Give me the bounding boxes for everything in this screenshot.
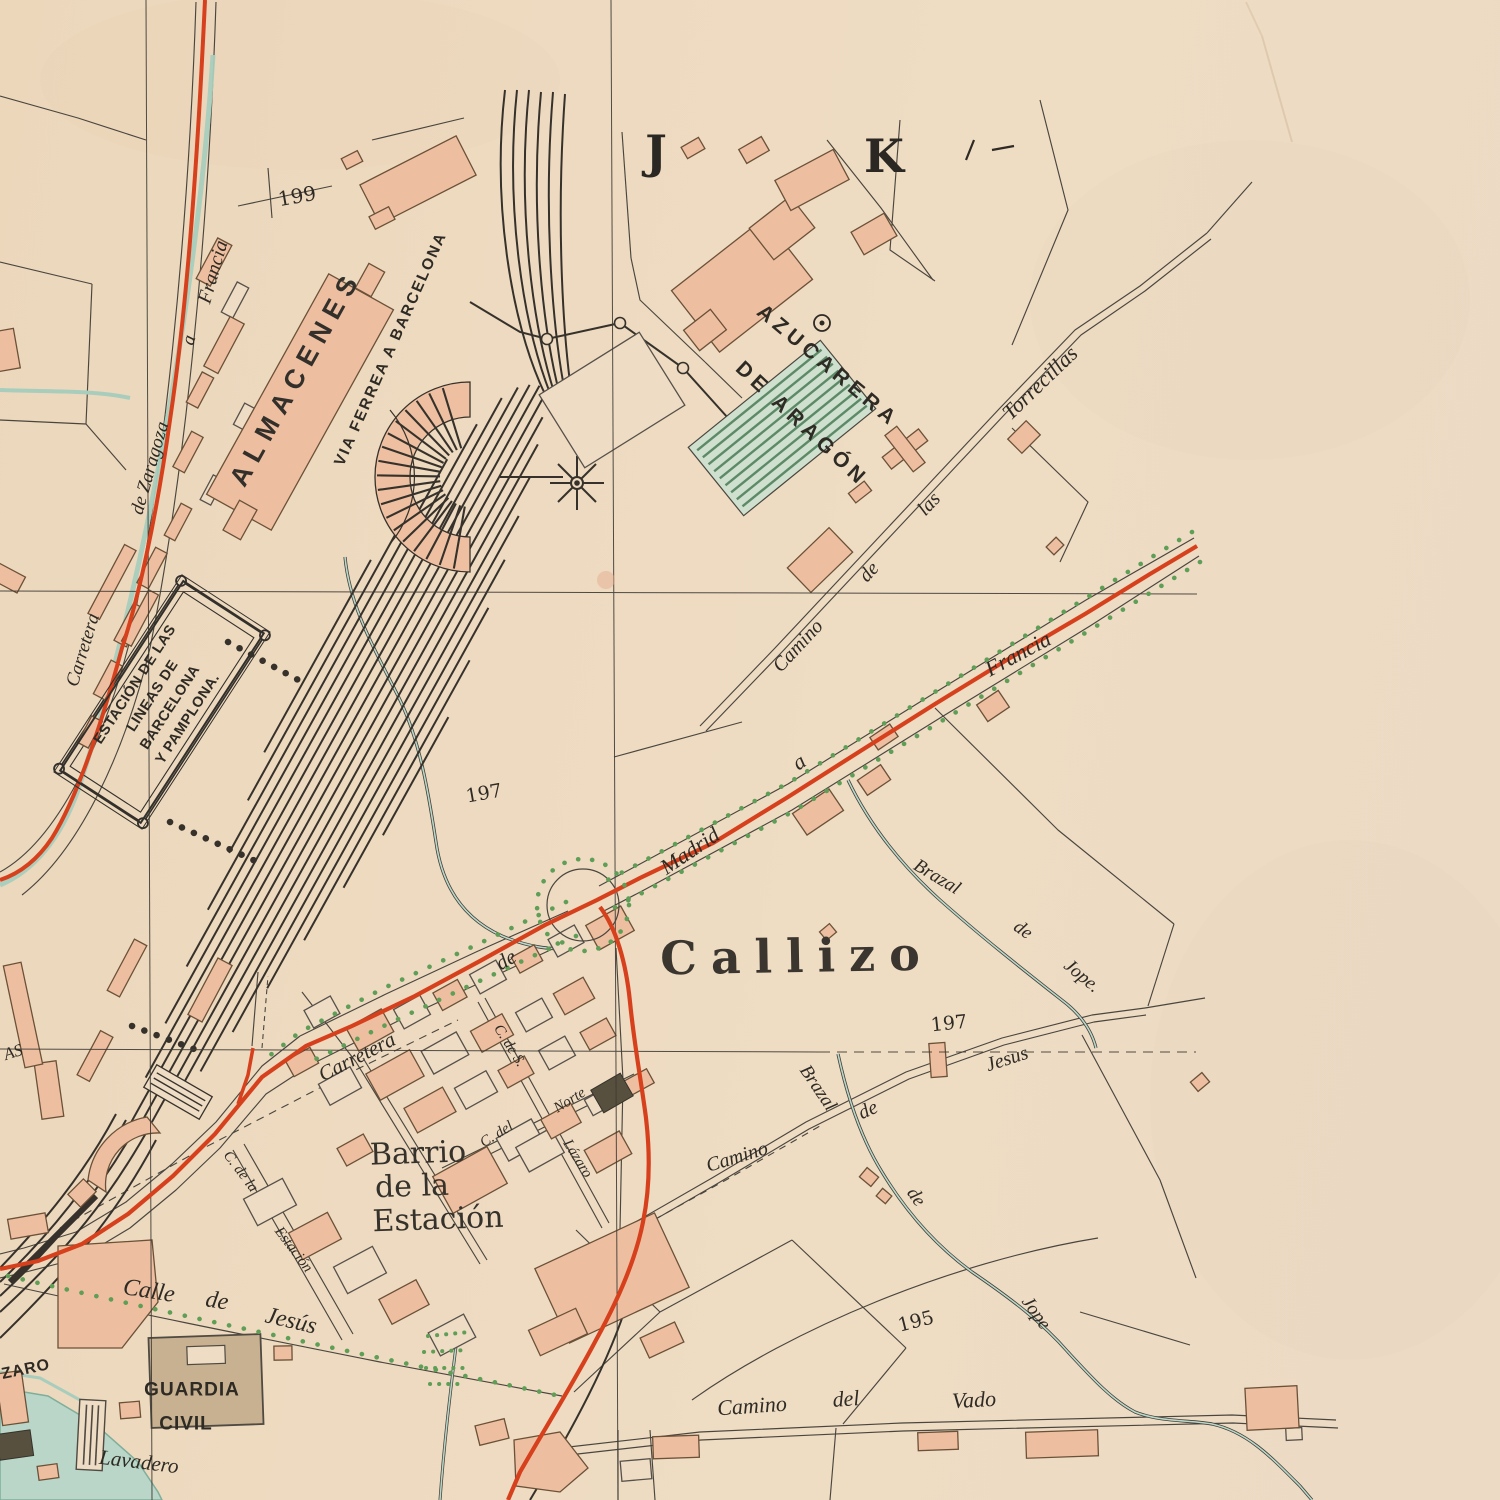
grid-letter-k: K	[864, 133, 904, 179]
label-guardia-civil-2: CIVIL	[159, 1415, 213, 1434]
grid-letter-j: J	[645, 129, 667, 175]
label-guardia-civil-1: GUARDIA	[144, 1381, 240, 1400]
label-barrio-2: de la	[375, 1171, 450, 1204]
elevation-197-right: 197	[930, 1013, 968, 1036]
map-linework	[0, 0, 1500, 1500]
label-barrio-1: Barrio	[369, 1137, 466, 1170]
elevation-199: 199	[276, 183, 317, 209]
label-camino-vado-2: del	[832, 1387, 860, 1411]
label-camino-vado-3: Vado	[951, 1388, 996, 1412]
label-barrio-3: Estación	[372, 1203, 504, 1238]
map-canvas: J K 199 ALMACENES VIA FERREA A BARCELONA…	[0, 0, 1500, 1500]
label-camino-vado-1: Camino	[716, 1393, 787, 1420]
tick-mark	[966, 140, 974, 160]
label-callizo: Callizo	[660, 931, 934, 982]
turntable-icon	[550, 456, 604, 510]
tick-mark	[992, 146, 1014, 150]
label-calle-jesus-2: de	[204, 1287, 230, 1314]
